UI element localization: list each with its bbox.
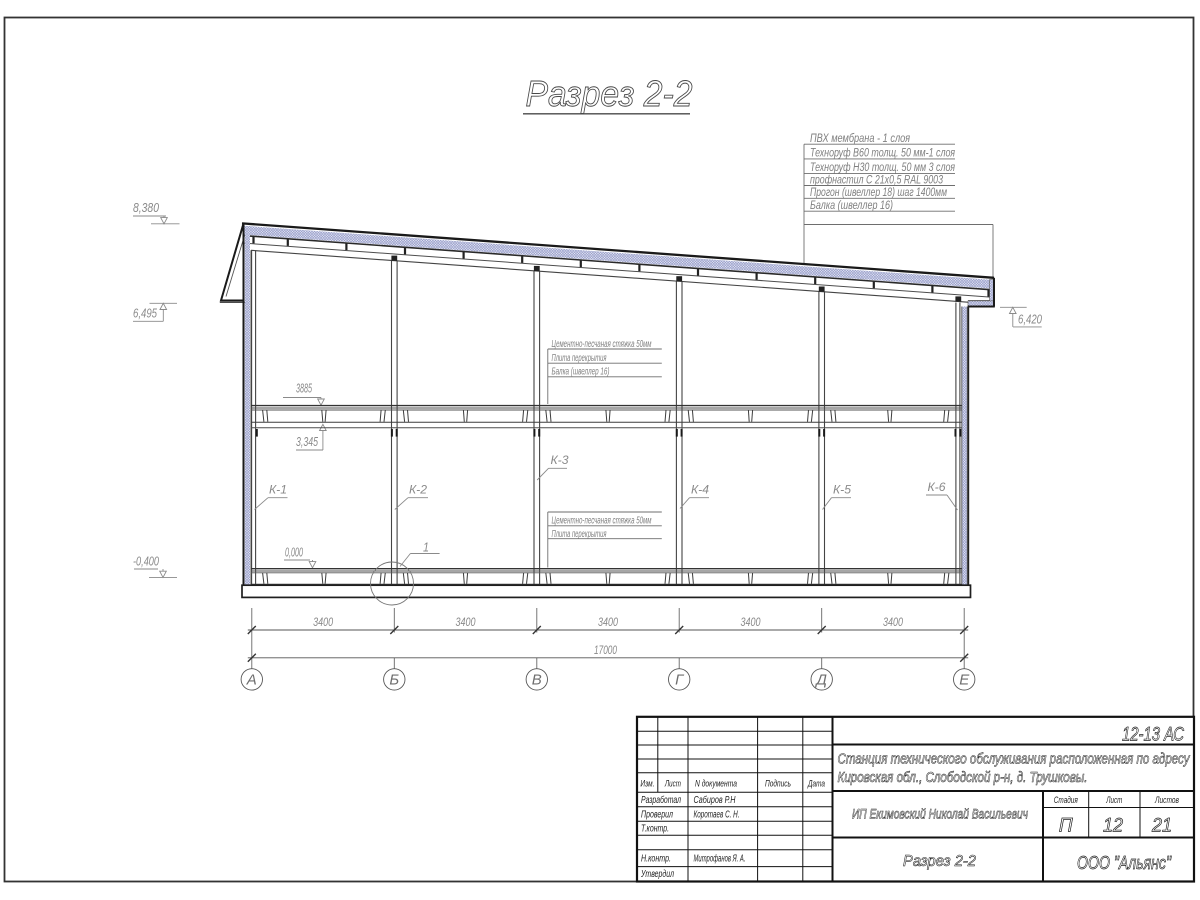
- svg-text:К-5: К-5: [833, 483, 851, 497]
- svg-text:Подпись: Подпись: [765, 779, 791, 790]
- svg-text:Балка (швеллер 16): Балка (швеллер 16): [552, 366, 610, 378]
- svg-text:3400: 3400: [741, 615, 761, 629]
- svg-text:6,495: 6,495: [133, 306, 158, 321]
- svg-text:Стадия: Стадия: [1054, 795, 1078, 806]
- svg-text:Станция технического обслужива: Станция технического обслуживания распол…: [838, 752, 1191, 768]
- svg-text:Б: Б: [389, 672, 399, 689]
- svg-text:1: 1: [423, 540, 429, 555]
- svg-text:3400: 3400: [598, 615, 618, 629]
- svg-text:А: А: [246, 672, 257, 689]
- svg-text:3400: 3400: [456, 615, 476, 629]
- svg-text:профнастил С 21х0,5 RAL 9003: профнастил С 21х0,5 RAL 9003: [810, 174, 943, 186]
- svg-text:Прогон (швеллер 18) шаг 1400мм: Прогон (швеллер 18) шаг 1400мм: [810, 187, 947, 199]
- svg-text:Н.контр.: Н.контр.: [641, 853, 671, 864]
- svg-text:Утвердил: Утвердил: [640, 869, 674, 880]
- svg-text:ПВХ мембрана - 1 слоя: ПВХ мембрана - 1 слоя: [810, 133, 910, 145]
- svg-text:Д: Д: [814, 672, 827, 689]
- svg-text:21: 21: [1151, 816, 1172, 837]
- svg-text:12: 12: [1103, 816, 1123, 837]
- svg-text:Плита перекрытия: Плита перекрытия: [552, 352, 607, 364]
- svg-text:Плита перекрытия: Плита перекрытия: [552, 528, 607, 540]
- svg-text:3,345: 3,345: [296, 434, 319, 449]
- svg-text:0,000: 0,000: [285, 545, 303, 560]
- svg-text:8,380: 8,380: [133, 200, 160, 215]
- svg-text:Цементно-песчаная стяжка 50мм: Цементно-песчаная стяжка 50мм: [552, 338, 652, 350]
- svg-text:Дата: Дата: [807, 779, 825, 790]
- svg-text:Балка (швеллер 16): Балка (швеллер 16): [810, 200, 893, 212]
- svg-text:N документа: N документа: [695, 779, 737, 790]
- svg-text:К-1: К-1: [269, 483, 287, 497]
- svg-text:Разработал: Разработал: [641, 794, 681, 806]
- svg-text:6,420: 6,420: [1018, 312, 1043, 327]
- svg-text:К-4: К-4: [691, 483, 709, 497]
- svg-text:17000: 17000: [594, 643, 617, 657]
- svg-text:П: П: [1059, 816, 1073, 837]
- svg-text:Цементно-песчаная стяжка 50мм: Цементно-песчаная стяжка 50мм: [552, 515, 652, 527]
- svg-text:Т.контр.: Т.контр.: [641, 824, 669, 835]
- svg-text:Кировская обл., Слободской р-н: Кировская обл., Слободской р-н, д. Трушк…: [838, 770, 1088, 786]
- svg-text:Е: Е: [959, 672, 970, 689]
- svg-text:12-13 АС: 12-13 АС: [1122, 724, 1185, 746]
- svg-text:-0,400: -0,400: [133, 554, 160, 569]
- svg-text:Лист: Лист: [1106, 795, 1123, 806]
- svg-text:Лист: Лист: [664, 779, 681, 790]
- svg-text:Разрез 2-2: Разрез 2-2: [526, 73, 693, 114]
- svg-text:Разрез 2-2: Разрез 2-2: [903, 853, 976, 870]
- svg-text:К-3: К-3: [551, 453, 569, 467]
- svg-text:ООО "Альянс": ООО "Альянс": [1077, 852, 1172, 873]
- svg-text:Проверил: Проверил: [641, 810, 673, 821]
- svg-text:Техноруф Н30 толщ. 50 мм 3 сло: Техноруф Н30 толщ. 50 мм 3 слоя: [810, 162, 955, 174]
- svg-text:Техноруф В60 толщ. 50 мм-1 сло: Техноруф В60 толщ. 50 мм-1 слоя: [810, 148, 955, 160]
- svg-text:3400: 3400: [313, 615, 333, 629]
- svg-text:Сабиров Р.Н: Сабиров Р.Н: [694, 794, 737, 806]
- svg-text:К-6: К-6: [928, 480, 946, 494]
- svg-text:3400: 3400: [883, 615, 903, 629]
- svg-text:В: В: [532, 672, 542, 689]
- svg-text:ИП Екимовский Николай Васильев: ИП Екимовский Николай Васильевич: [852, 806, 1028, 822]
- svg-text:Изм.: Изм.: [640, 779, 654, 790]
- svg-text:Коротаев С. Н.: Коротаев С. Н.: [694, 810, 740, 821]
- svg-text:Листов: Листов: [1154, 795, 1179, 806]
- svg-text:Митрофанов Я. А.: Митрофанов Я. А.: [694, 852, 746, 864]
- svg-text:К-2: К-2: [409, 483, 427, 497]
- svg-text:3885: 3885: [296, 381, 312, 396]
